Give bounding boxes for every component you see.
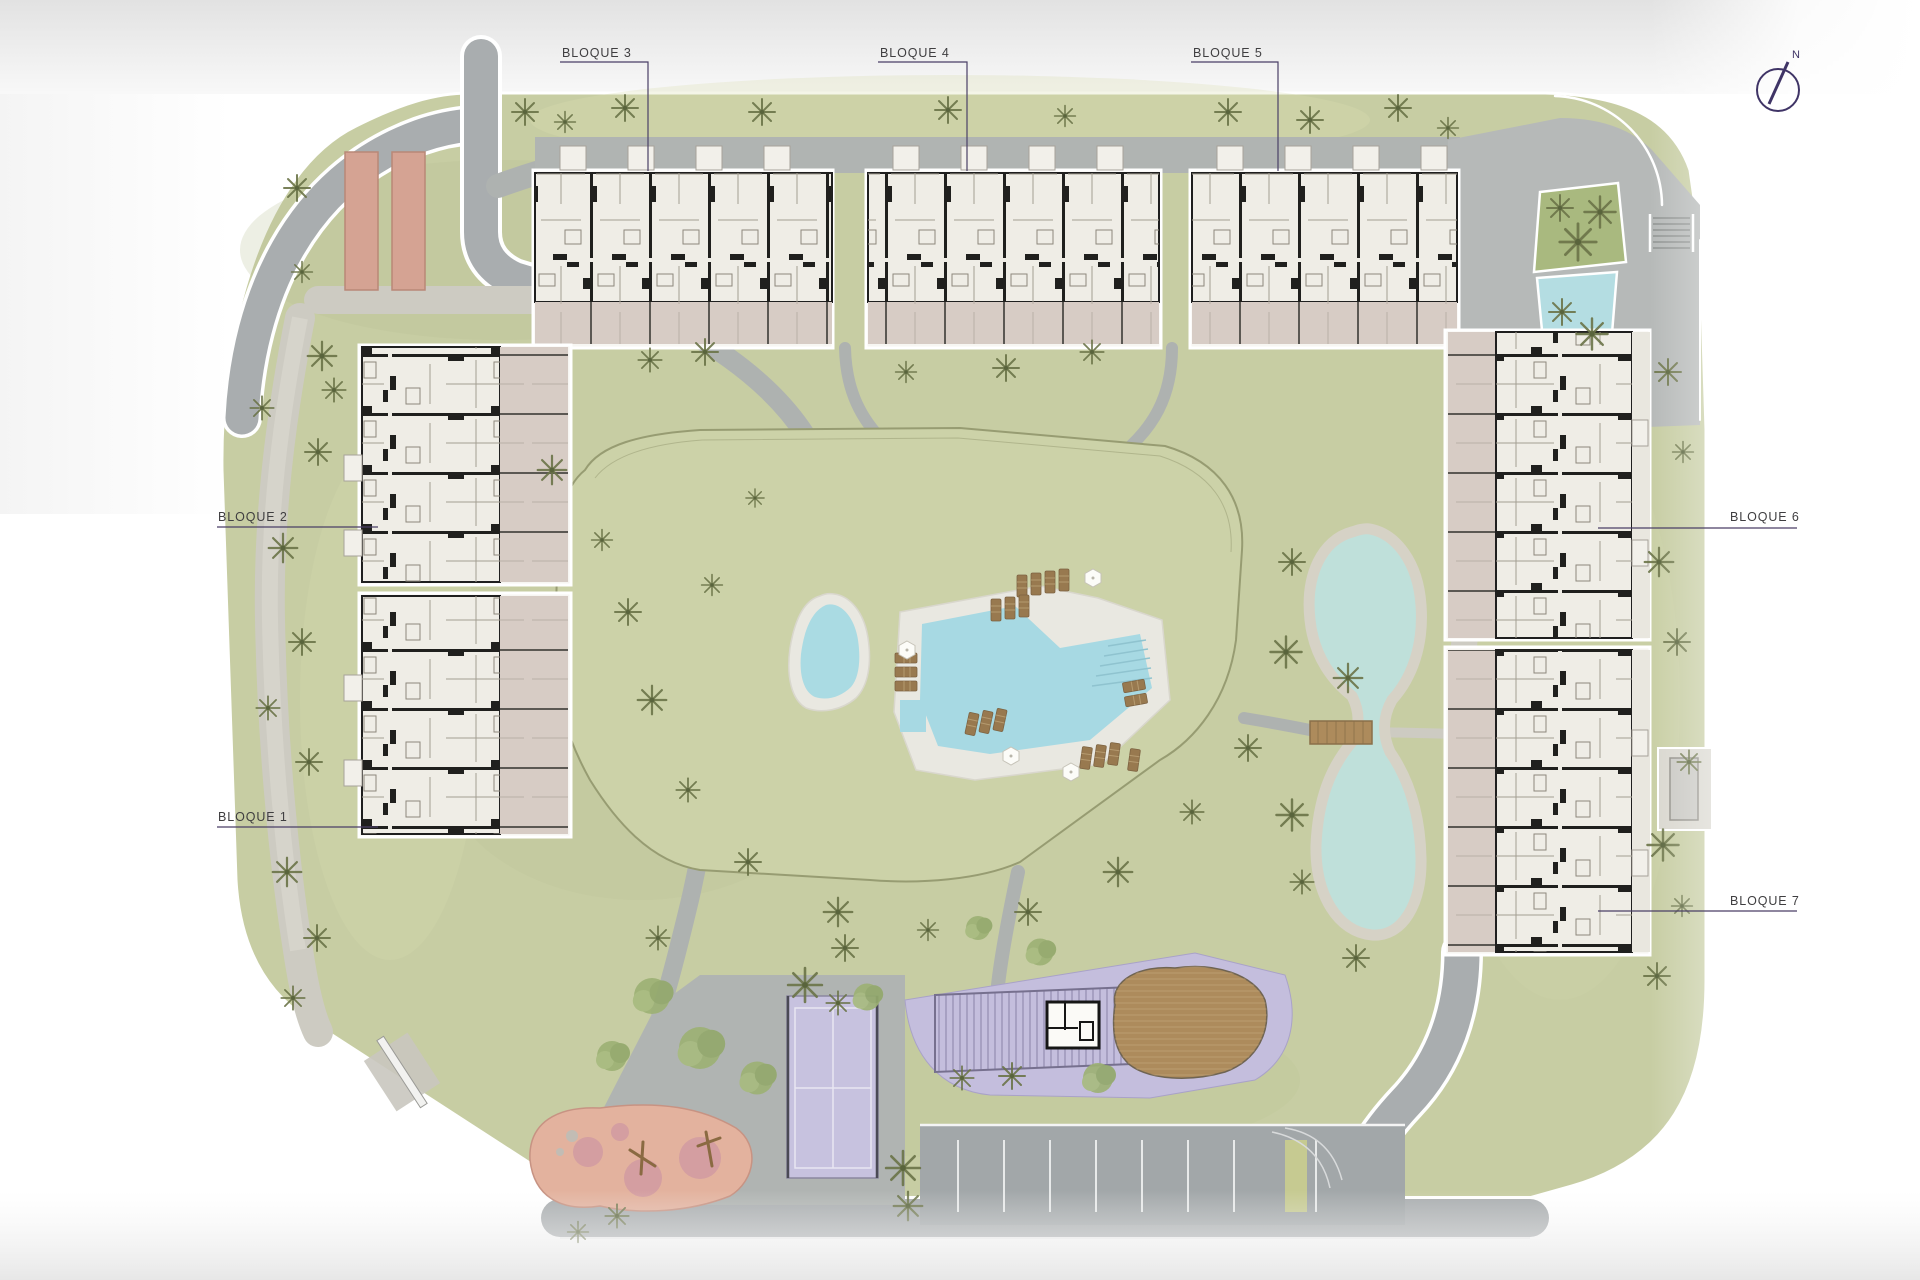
pond-bridge [1310,721,1372,744]
site-plan-canvas: BLOQUE 3 BLOQUE 4 BLOQUE 5 BLOQUE 2 BLOQ… [0,0,1920,1280]
right-fade [1650,0,1920,1280]
building-bloque-1[interactable] [344,593,571,837]
building-bloque-2[interactable] [344,345,571,585]
tennis-court [787,996,878,1178]
label-text[interactable]: BLOQUE 3 [562,46,632,60]
building-bloque-4[interactable] [866,146,1161,348]
label-text[interactable]: BLOQUE 5 [1193,46,1263,60]
bottom-fade [0,1190,1920,1280]
top-access-path [535,137,1460,173]
pool-step [900,700,926,732]
label-text[interactable]: BLOQUE 6 [1730,510,1800,524]
label-text[interactable]: BLOQUE 1 [218,810,288,824]
label-text[interactable]: BLOQUE 7 [1730,894,1800,908]
label-text[interactable]: BLOQUE 4 [880,46,950,60]
carport-pergola [392,152,425,290]
building-bloque-5[interactable] [1190,146,1459,348]
pool-house [1047,1002,1099,1048]
label-text[interactable]: BLOQUE 2 [218,510,288,524]
building-bloque-6[interactable] [1445,330,1650,640]
building-bloque-7[interactable] [1445,647,1650,955]
carport-pergola [345,152,378,290]
north-label: N [1792,49,1800,61]
building-bloque-3[interactable] [533,146,833,348]
planter-square [1534,183,1626,272]
